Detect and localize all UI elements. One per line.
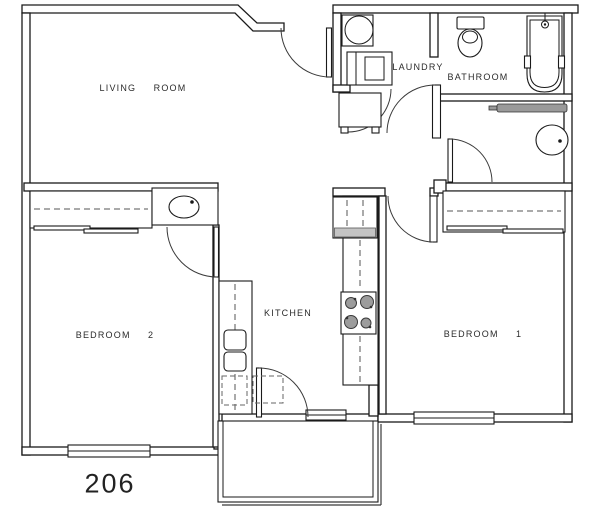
vanity-counter-icon	[489, 104, 567, 112]
bedroom2-closet	[30, 191, 152, 233]
round-sink-icon	[536, 125, 568, 155]
door-swing-arc	[388, 196, 433, 242]
window-bedroom2	[68, 445, 150, 457]
wall-top-right	[333, 5, 578, 13]
label-kitchen: KITCHEN	[264, 308, 312, 318]
floor-plan: LIVING ROOM LAUNDRY BATHROOM KITCHEN BED…	[0, 0, 600, 516]
door-leaf	[327, 28, 332, 77]
door-leaf	[257, 368, 262, 417]
balcony	[218, 421, 381, 505]
bypass-door-icon	[34, 226, 90, 230]
door-swing-arc	[387, 85, 435, 133]
wall-kitchen-top	[333, 188, 385, 196]
door-bedroom2	[167, 227, 219, 277]
washer-dryer-icon	[347, 52, 392, 85]
bypass-door-icon	[447, 226, 507, 230]
door-swing-arc	[450, 139, 492, 182]
wall-top-left	[22, 5, 284, 31]
kitchen-fixtures	[219, 196, 378, 414]
wall-bedroom1-top	[436, 183, 572, 191]
door-kitchen-entry	[257, 368, 309, 417]
bathroom-fixtures	[457, 13, 568, 155]
window-bedroom1	[414, 412, 494, 424]
water-heater-icon	[342, 15, 373, 46]
refrigerator-icon	[333, 197, 377, 238]
unit-number: 206	[84, 469, 135, 500]
toilet-icon	[457, 17, 484, 57]
door-main-entry	[281, 28, 332, 77]
mechanical-chase-icon	[339, 93, 381, 133]
tub-handle-left-icon	[525, 56, 531, 68]
label-laundry: LAUNDRY	[392, 62, 443, 72]
entry-door-sill	[306, 410, 346, 420]
label-living-room: LIVING ROOM	[100, 83, 187, 93]
tub-faucet-icon	[544, 23, 546, 25]
label-bedroom-1: BEDROOM 1	[444, 329, 523, 339]
door-leaf	[448, 139, 453, 182]
tub-handle-right-icon	[559, 56, 565, 68]
door-leaf	[214, 227, 219, 277]
oval-sink-icon	[169, 196, 199, 218]
bypass-door-icon	[503, 229, 563, 233]
bedroom1-closet	[443, 191, 565, 233]
wall-laundry-bottom-stub	[333, 85, 350, 92]
bypass-door-icon	[84, 229, 138, 233]
label-bedroom-2: BEDROOM 2	[76, 330, 155, 340]
wall-bathroom-bottom	[438, 94, 572, 101]
label-bathroom: BATHROOM	[448, 72, 509, 82]
wall-kitchen-bedroom1	[379, 196, 386, 414]
balcony-outer	[218, 421, 378, 502]
door-swing-arc	[259, 368, 308, 417]
door-leaf	[430, 196, 437, 242]
bedroom2-vanity	[152, 188, 218, 225]
door-bedroom1	[388, 196, 437, 242]
door-swing-arc	[167, 227, 217, 277]
wall-counter-stub	[369, 385, 378, 416]
wall-laundry-bathroom	[430, 13, 438, 57]
bathtub-icon	[525, 13, 565, 92]
wall-laundry-left	[333, 13, 341, 92]
door-bathroom	[387, 85, 441, 138]
double-sink-icon	[224, 330, 246, 371]
wall-left	[22, 13, 30, 455]
laundry-fixtures	[339, 15, 392, 133]
door-vanity-nook	[448, 139, 492, 182]
door-leaf	[433, 85, 441, 138]
door-swing-arc	[281, 28, 330, 77]
range-cooktop-icon	[341, 292, 376, 334]
floor-plan-drawing	[0, 0, 600, 516]
